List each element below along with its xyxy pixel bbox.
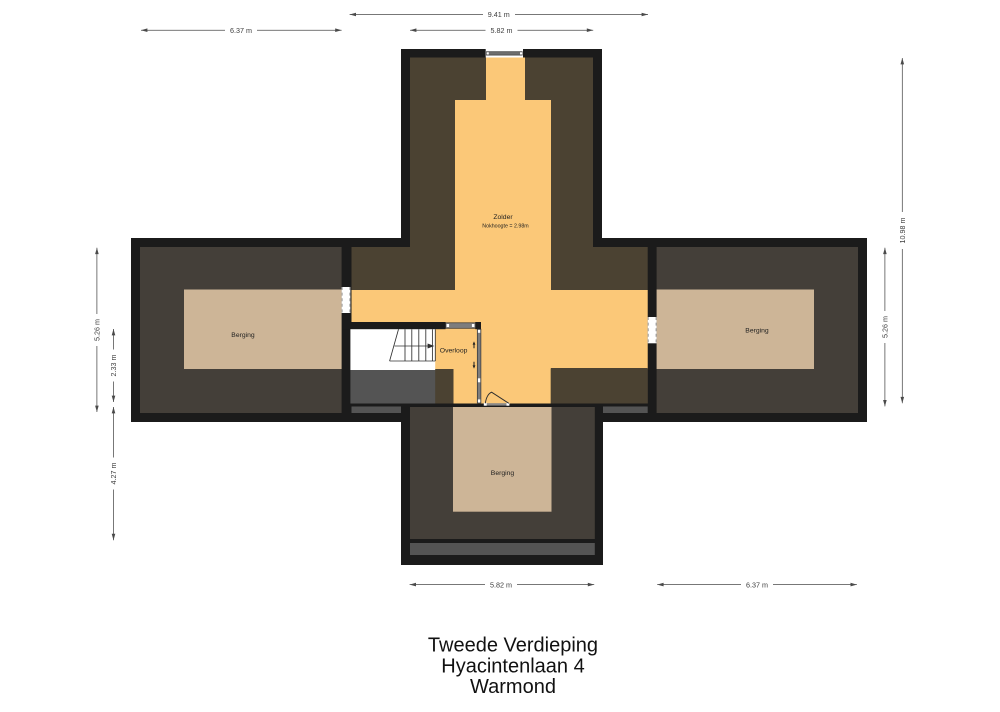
svg-text:Berging: Berging xyxy=(491,470,515,477)
svg-text:Berging: Berging xyxy=(231,332,255,339)
svg-text:5.82 m: 5.82 m xyxy=(490,580,512,589)
svg-text:5.26 m: 5.26 m xyxy=(881,316,890,338)
svg-text:Tweede Verdieping: Tweede Verdieping xyxy=(428,635,598,657)
svg-text:Berging: Berging xyxy=(745,328,769,335)
svg-text:10.98 m: 10.98 m xyxy=(898,218,907,244)
svg-text:6.37 m: 6.37 m xyxy=(746,580,768,589)
svg-text:5.82 m: 5.82 m xyxy=(491,26,513,35)
svg-text:Nokhoogte = 2.98m: Nokhoogte = 2.98m xyxy=(482,224,529,230)
svg-text:Warmond: Warmond xyxy=(470,676,556,698)
svg-text:Hyacintenlaan 4: Hyacintenlaan 4 xyxy=(441,655,584,677)
svg-text:9.41 m: 9.41 m xyxy=(488,10,510,19)
svg-text:6.37 m: 6.37 m xyxy=(230,26,252,35)
svg-text:2.33 m: 2.33 m xyxy=(109,355,118,377)
svg-text:4.27 m: 4.27 m xyxy=(109,463,118,485)
svg-text:Overloop: Overloop xyxy=(440,348,468,355)
svg-text:Zolder: Zolder xyxy=(493,214,513,221)
svg-text:5.26 m: 5.26 m xyxy=(93,319,102,341)
